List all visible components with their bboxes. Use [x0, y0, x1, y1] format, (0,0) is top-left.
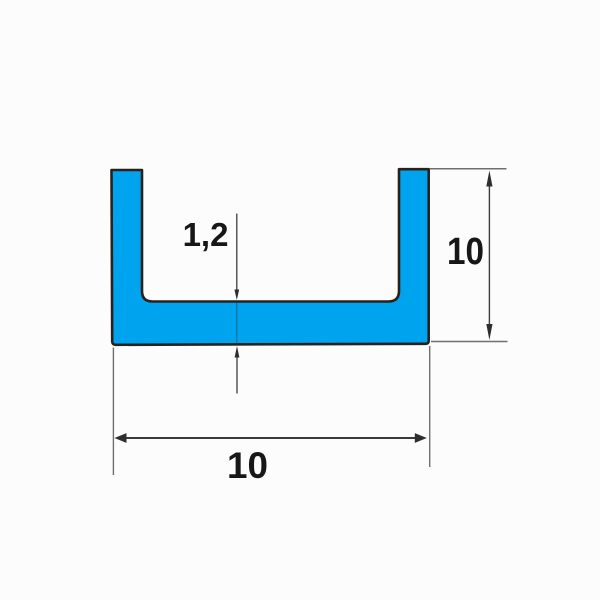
svg-text:1,2: 1,2 — [183, 216, 229, 253]
svg-text:10: 10 — [227, 445, 268, 486]
svg-text:10: 10 — [447, 231, 484, 273]
